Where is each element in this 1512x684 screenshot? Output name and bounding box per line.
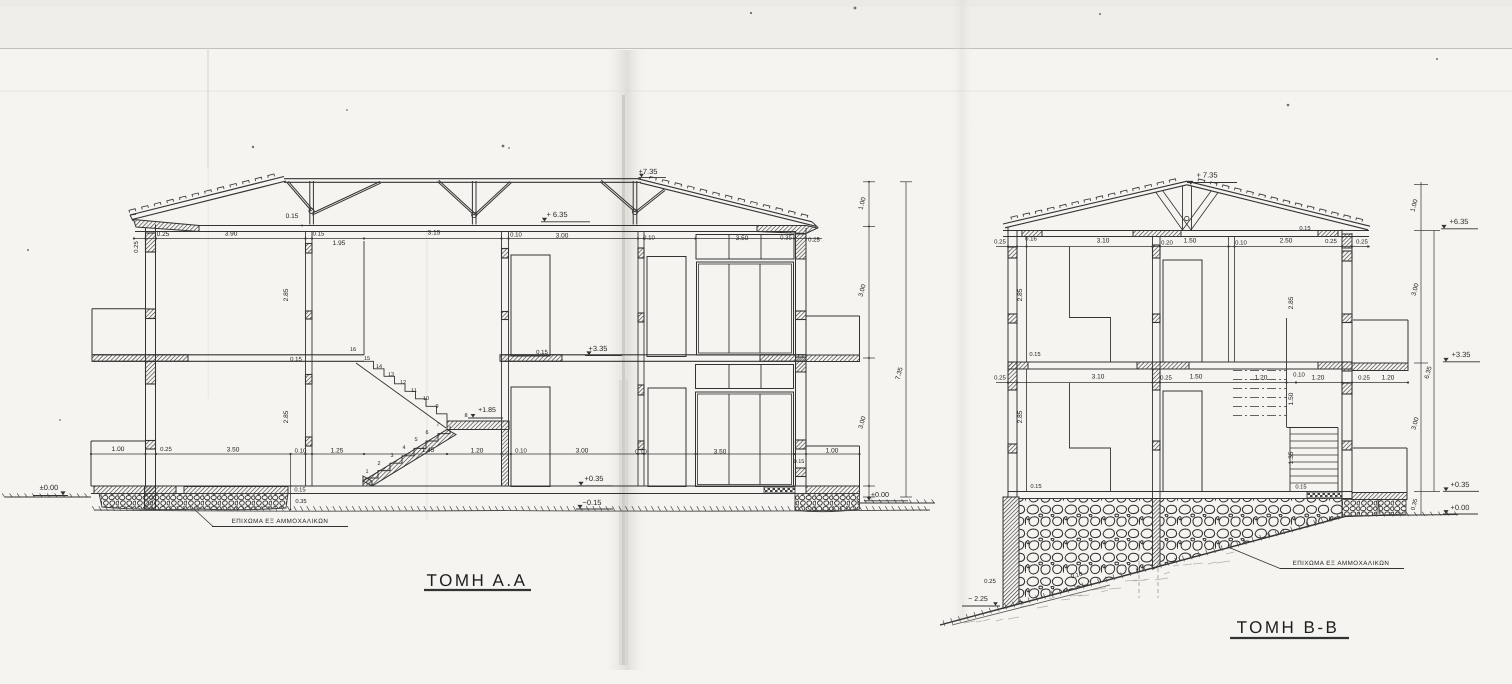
svg-text:±0.00: ±0.00 (871, 490, 889, 499)
svg-text:4: 4 (402, 445, 405, 451)
svg-text:14: 14 (376, 364, 382, 370)
svg-text:−0.15: −0.15 (583, 498, 602, 507)
svg-text:0.35: 0.35 (295, 498, 306, 505)
svg-text:+ 7.35: + 7.35 (1196, 171, 1217, 180)
svg-text:3.10: 3.10 (1097, 238, 1110, 245)
svg-text:9: 9 (435, 404, 438, 410)
svg-text:ΤΟΜΗ Β-Β: ΤΟΜΗ Β-Β (1237, 618, 1340, 637)
svg-text:7: 7 (436, 422, 439, 428)
svg-text:2.50: 2.50 (1280, 238, 1293, 245)
svg-text:0.10: 0.10 (515, 448, 527, 455)
svg-text:3.50: 3.50 (714, 449, 727, 456)
svg-text:10: 10 (423, 396, 429, 402)
svg-text:1.00: 1.00 (112, 446, 125, 453)
svg-text:3.00: 3.00 (576, 448, 589, 455)
svg-text:0.10: 0.10 (1235, 240, 1247, 247)
svg-text:0.25: 0.25 (1356, 239, 1368, 246)
svg-text:0.10: 0.10 (295, 448, 307, 455)
svg-text:2.85: 2.85 (283, 410, 290, 423)
svg-text:3.90: 3.90 (225, 231, 238, 238)
svg-text:±0.00: ±0.00 (40, 483, 59, 492)
svg-text:+3.35: +3.35 (1452, 350, 1471, 359)
svg-text:1.50: 1.50 (1190, 374, 1203, 381)
svg-text:0.25: 0.25 (133, 241, 140, 253)
svg-text:0.25: 0.25 (1325, 238, 1337, 245)
svg-text:0.15: 0.15 (313, 231, 325, 238)
svg-text:3.00: 3.00 (556, 233, 569, 240)
svg-text:0.16: 0.16 (1025, 236, 1037, 243)
svg-text:2.85: 2.85 (283, 288, 290, 301)
svg-text:11: 11 (411, 388, 417, 394)
svg-text:0.15: 0.15 (1295, 484, 1306, 491)
svg-text:12: 12 (400, 380, 406, 386)
svg-text:1.20: 1.20 (1255, 375, 1268, 382)
svg-text:1.25: 1.25 (331, 448, 344, 455)
svg-text:1.50: 1.50 (1184, 238, 1197, 245)
svg-text:+ 6.35: + 6.35 (546, 210, 567, 219)
svg-text:+0.35: +0.35 (585, 474, 604, 483)
svg-text:1.20: 1.20 (1382, 375, 1395, 382)
svg-text:0.15: 0.15 (794, 459, 805, 465)
svg-text:8: 8 (464, 413, 467, 419)
svg-text:0.10: 0.10 (510, 232, 522, 239)
svg-text:0.15: 0.15 (294, 487, 305, 494)
svg-text:3.50: 3.50 (736, 235, 749, 242)
svg-text:1.20: 1.20 (471, 448, 484, 455)
svg-text:0.25: 0.25 (1358, 375, 1370, 382)
svg-text:13: 13 (388, 372, 394, 378)
svg-text:0.20: 0.20 (1161, 240, 1173, 247)
svg-text:1.00: 1.00 (826, 448, 839, 455)
svg-text:1.45: 1.45 (422, 447, 435, 454)
svg-text:+0.00: +0.00 (1451, 503, 1470, 512)
svg-text:0.25: 0.25 (1160, 375, 1172, 382)
svg-text:2: 2 (377, 461, 380, 467)
svg-text:3.50: 3.50 (227, 447, 240, 454)
svg-text:0.15: 0.15 (1299, 225, 1310, 232)
svg-text:ΤΟΜΗ Α.Α: ΤΟΜΗ Α.Α (427, 571, 528, 590)
svg-text:0.15: 0.15 (290, 356, 302, 363)
svg-text:3.10: 3.10 (1092, 374, 1105, 381)
svg-text:1: 1 (365, 469, 368, 475)
svg-text:ΕΠΙΧΩΜΑ ΕΞ ΑΜΜΟΧΑΛΙΚΩΝ: ΕΠΙΧΩΜΑ ΕΞ ΑΜΜΟΧΑΛΙΚΩΝ (1293, 560, 1390, 567)
svg-text:1.50: 1.50 (1288, 392, 1295, 405)
svg-text:15: 15 (364, 356, 370, 362)
svg-text:0.25: 0.25 (160, 446, 172, 453)
svg-text:+1.85: +1.85 (478, 407, 496, 414)
svg-text:0.15: 0.15 (1029, 351, 1040, 358)
svg-text:0.25: 0.25 (984, 578, 996, 585)
svg-text:5: 5 (414, 437, 417, 443)
svg-text:0.10: 0.10 (635, 449, 647, 456)
svg-text:+0.35: +0.35 (1451, 480, 1470, 489)
svg-text:0.25: 0.25 (994, 239, 1006, 246)
svg-text:2.85: 2.85 (1017, 410, 1024, 423)
svg-text:6: 6 (425, 430, 428, 436)
svg-text:− 2.25: − 2.25 (968, 596, 988, 603)
svg-text:0.25: 0.25 (808, 237, 820, 244)
svg-text:2.85: 2.85 (1017, 288, 1024, 301)
svg-text:3.15: 3.15 (428, 230, 441, 237)
svg-text:0.35: 0.35 (780, 235, 792, 242)
svg-text:0.15: 0.15 (286, 213, 299, 220)
svg-text:0.10: 0.10 (643, 235, 655, 242)
svg-text:0.15: 0.15 (536, 349, 548, 356)
svg-text:2.85: 2.85 (1288, 296, 1295, 309)
svg-text:0.10: 0.10 (1293, 372, 1305, 379)
svg-text:+6.35: +6.35 (1450, 217, 1469, 226)
svg-text:0.15: 0.15 (1030, 483, 1041, 490)
svg-text:16: 16 (350, 347, 356, 353)
svg-text:ΕΠΙΧΩΜΑ ΕΞ ΑΜΜΟΧΑΛΙΚΩΝ: ΕΠΙΧΩΜΑ ΕΞ ΑΜΜΟΧΑΛΙΚΩΝ (232, 518, 329, 525)
svg-text:0.25: 0.25 (994, 375, 1006, 382)
svg-text:1.95: 1.95 (333, 240, 346, 247)
svg-text:1.20: 1.20 (1312, 375, 1325, 382)
svg-text:0.25: 0.25 (157, 231, 170, 238)
